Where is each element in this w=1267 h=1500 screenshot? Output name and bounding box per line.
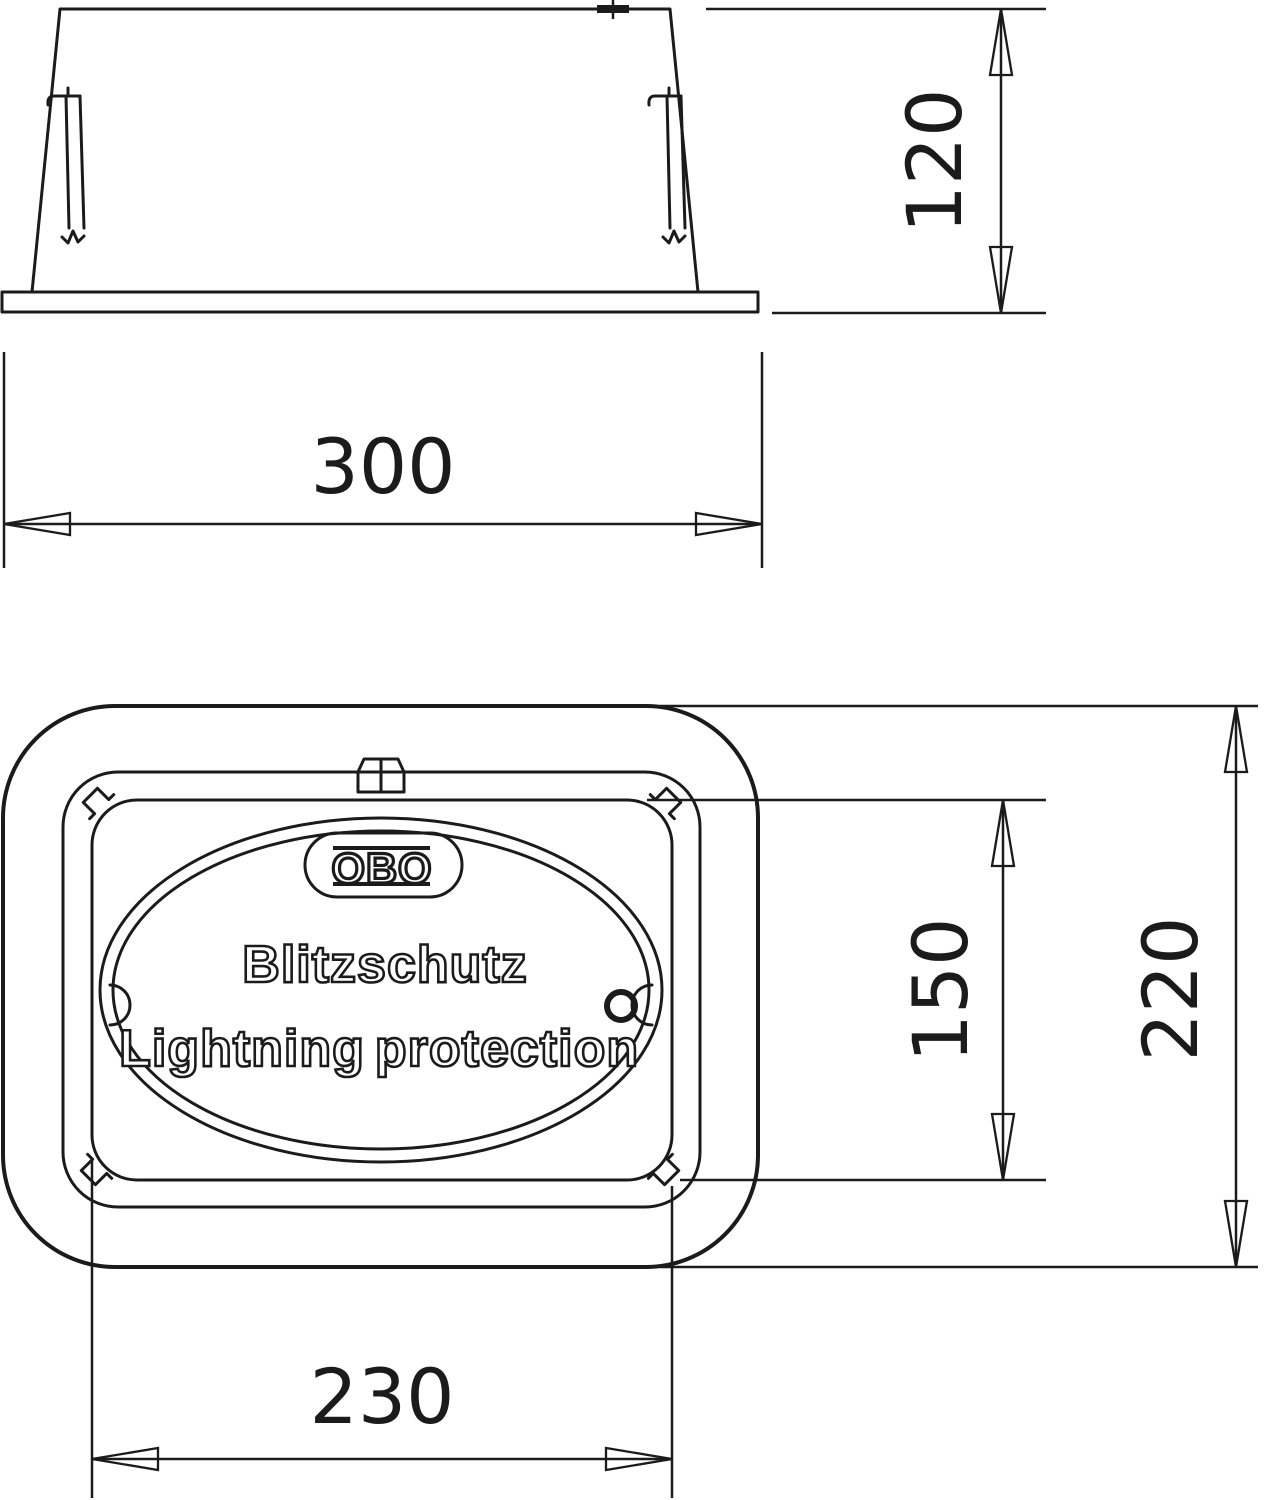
dimension-value-150: 150	[896, 917, 985, 1062]
rib-edge-right	[681, 96, 685, 228]
housing-body-outline	[32, 9, 698, 292]
corner-mark-glyph	[76, 1154, 111, 1189]
drawing-page: 120 300 OBO	[0, 0, 1267, 1500]
dimension-230: 230	[92, 1158, 672, 1498]
plan-view: OBO Blitzschutz Lightning protection	[3, 706, 1258, 1498]
dimension-value-230: 230	[309, 1352, 454, 1441]
rib-cap	[48, 96, 80, 105]
dimension-300: 300	[4, 352, 762, 568]
label-text-english-word2: protection	[375, 1020, 639, 1078]
dimension-value-300: 300	[310, 422, 455, 511]
label-text-german: Blitzschutz	[242, 936, 527, 994]
corner-mark-bottom-right	[648, 1154, 683, 1189]
rib-break-chevron	[663, 231, 685, 243]
side-view: 120 300	[2, 0, 1046, 568]
technical-dimension-drawing: 120 300 OBO	[0, 0, 1267, 1500]
flange-plate-side	[2, 292, 758, 312]
rib-break-chevron	[62, 231, 84, 243]
corner-mark-top-left	[78, 783, 113, 818]
label-text-english-word1: Lightning	[119, 1020, 365, 1078]
dimension-120: 120	[706, 9, 1046, 313]
lid-bolt	[358, 759, 404, 792]
brand-logo-text: OBO	[332, 845, 433, 893]
corner-mark-bottom-left	[76, 1154, 111, 1189]
rib-cap	[649, 96, 681, 105]
brand-badge: OBO	[305, 833, 462, 897]
dimension-value-220: 220	[1126, 916, 1215, 1061]
corner-mark-glyph	[648, 1154, 683, 1189]
anchor-rib-left	[48, 88, 84, 243]
rib-edge-left	[667, 96, 670, 228]
rib-edge-right	[80, 96, 84, 228]
corner-mark-glyph	[78, 783, 113, 818]
rib-edge-left	[66, 96, 69, 228]
dimension-value-120: 120	[890, 88, 979, 233]
dimension-150: 150	[647, 800, 1046, 1180]
